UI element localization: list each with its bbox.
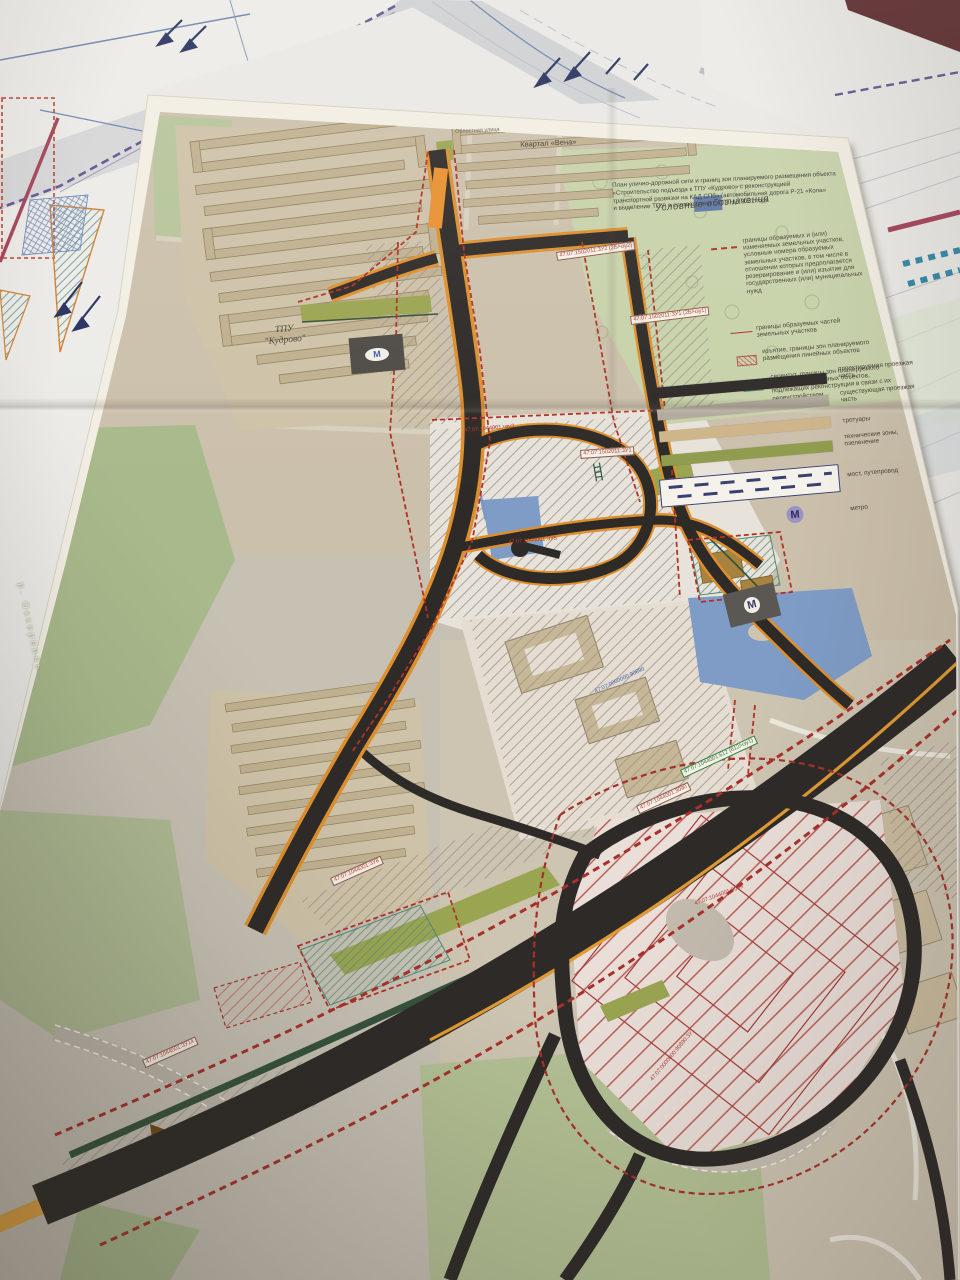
- photo-of-planning-maps: План улично-дорожной сети и границ зон п…: [0, 0, 960, 1280]
- vignette: [0, 0, 960, 1280]
